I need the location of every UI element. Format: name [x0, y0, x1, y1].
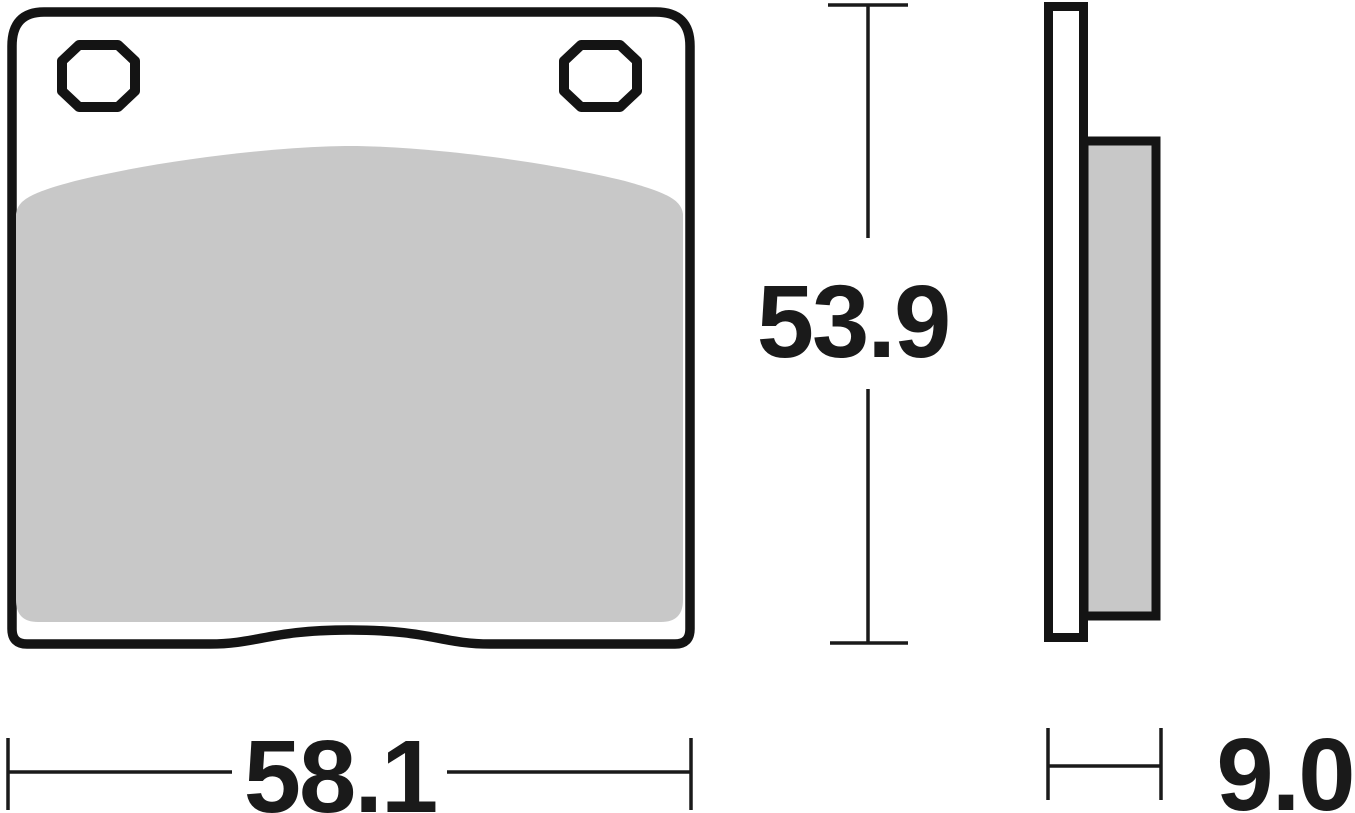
mounting-hole-right-icon	[564, 45, 637, 107]
side-view	[1049, 7, 1157, 638]
height-dimension-label: 53.9	[757, 264, 949, 379]
width-dimension-label: 58.1	[244, 719, 436, 813]
brake-pad-technical-drawing: 58.1 53.9 9.0	[0, 0, 1355, 813]
friction-material-front	[16, 146, 683, 622]
backing-plate-side	[1049, 7, 1084, 638]
thickness-dimension-label: 9.0	[1216, 717, 1353, 813]
drawing-canvas: 58.1 53.9 9.0	[0, 0, 1355, 813]
mounting-hole-left-icon	[62, 45, 135, 107]
front-view	[12, 12, 690, 644]
friction-material-side	[1084, 141, 1156, 616]
thickness-dimension	[1048, 728, 1161, 800]
